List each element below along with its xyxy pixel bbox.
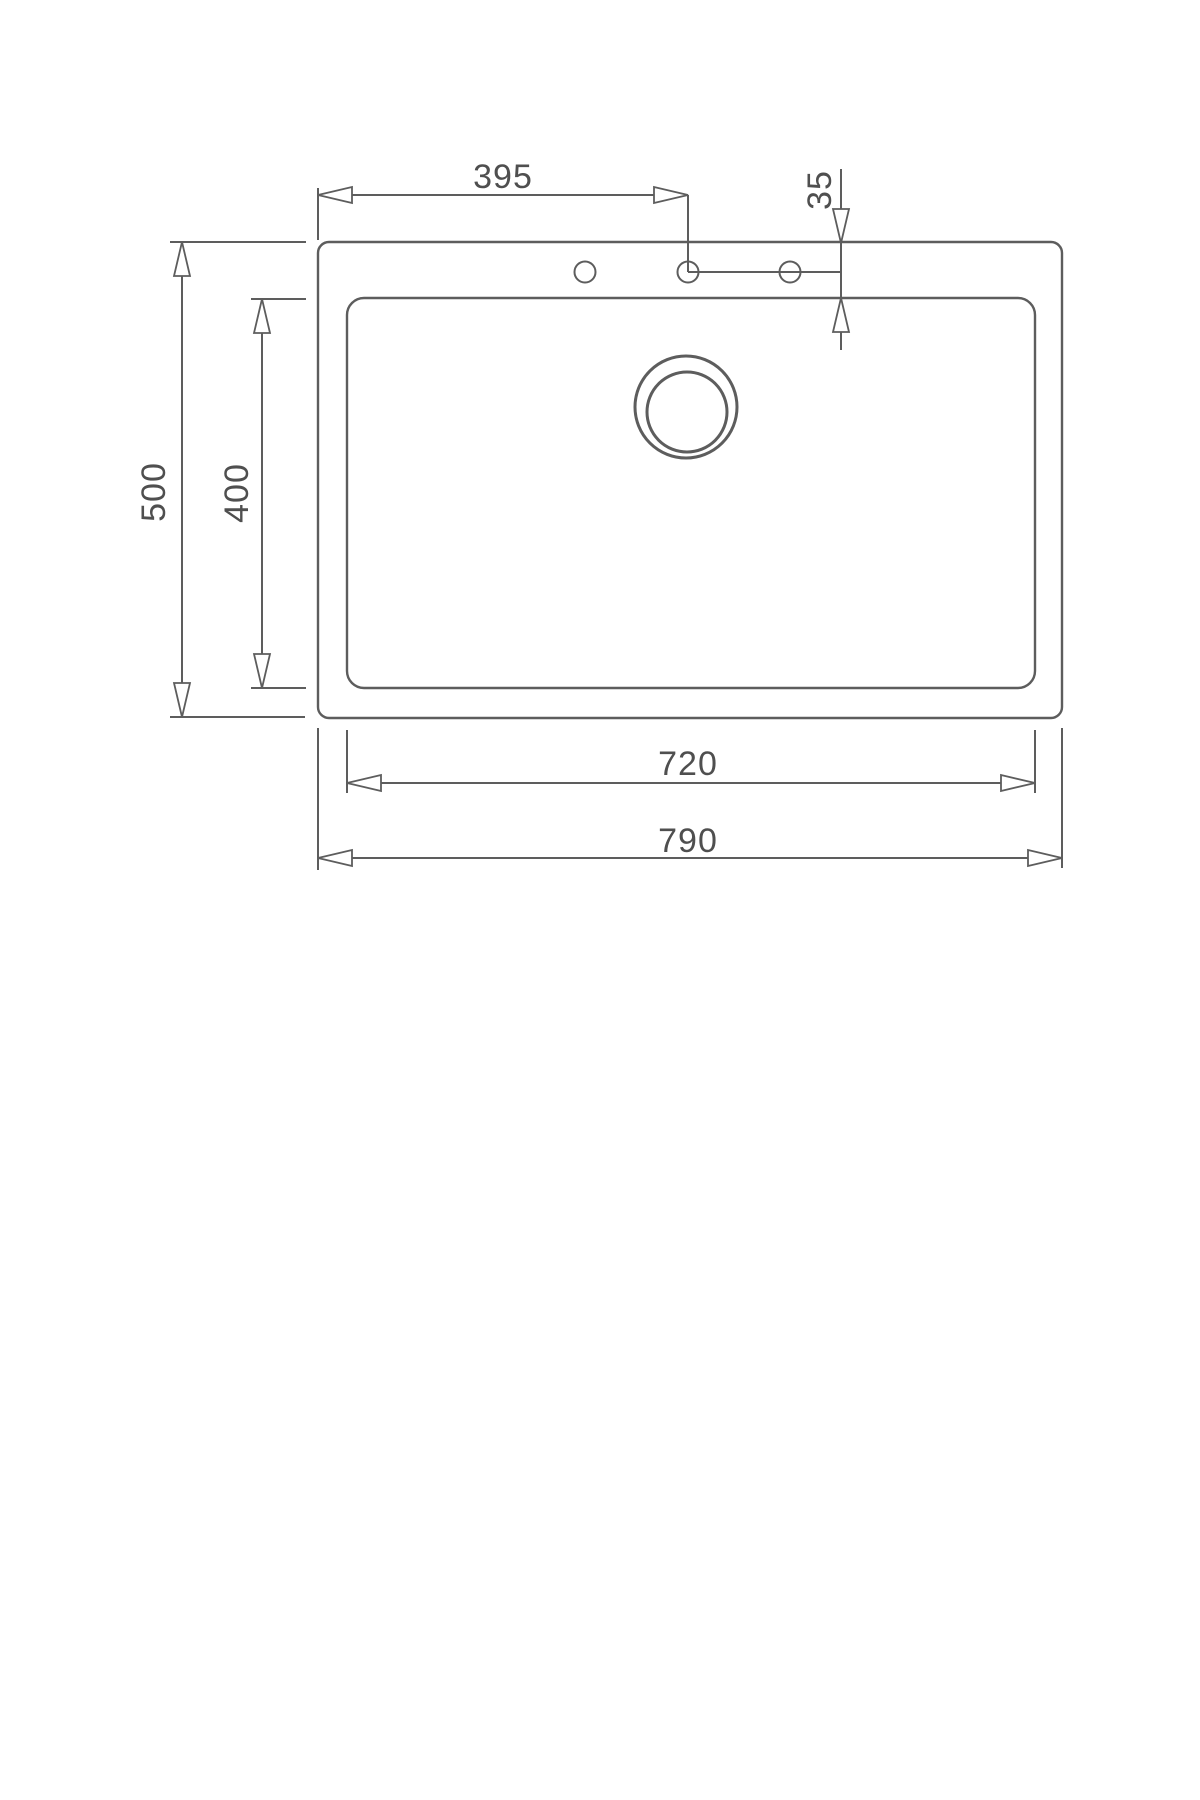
arrowhead-right xyxy=(1028,850,1062,866)
arrowhead-right xyxy=(1001,775,1035,791)
tap-holes xyxy=(575,262,842,283)
drawing-canvas: 395 35 500 xyxy=(0,0,1200,1800)
drain xyxy=(635,356,737,458)
sink-outer-rim xyxy=(318,242,1062,718)
dimension-label-790: 790 xyxy=(658,822,718,860)
dimension-400: 400 xyxy=(218,299,306,688)
dimension-label-500: 500 xyxy=(135,462,173,522)
arrowhead-down xyxy=(174,683,190,717)
tap-hole-left xyxy=(575,262,596,283)
dimension-label-400: 400 xyxy=(218,463,256,523)
arrowhead-left xyxy=(318,850,352,866)
arrowhead-up xyxy=(833,298,849,332)
drain-inner-circle xyxy=(647,372,727,452)
sink-technical-drawing: 395 35 500 xyxy=(0,0,1200,1800)
arrowhead-down xyxy=(254,654,270,688)
arrowhead-down xyxy=(833,209,849,243)
arrowhead-left xyxy=(347,775,381,791)
dimension-label-720: 720 xyxy=(658,745,718,783)
arrowhead-left xyxy=(318,187,352,203)
dimension-35: 35 xyxy=(801,169,849,350)
dimension-label-35: 35 xyxy=(801,170,839,210)
dimension-label-395: 395 xyxy=(473,158,533,196)
dimension-720: 720 xyxy=(347,730,1035,793)
dimension-395: 395 xyxy=(318,158,688,272)
arrowhead-right xyxy=(654,187,688,203)
arrowhead-up xyxy=(254,299,270,333)
arrowhead-up xyxy=(174,242,190,276)
sink-outline xyxy=(318,242,1062,718)
